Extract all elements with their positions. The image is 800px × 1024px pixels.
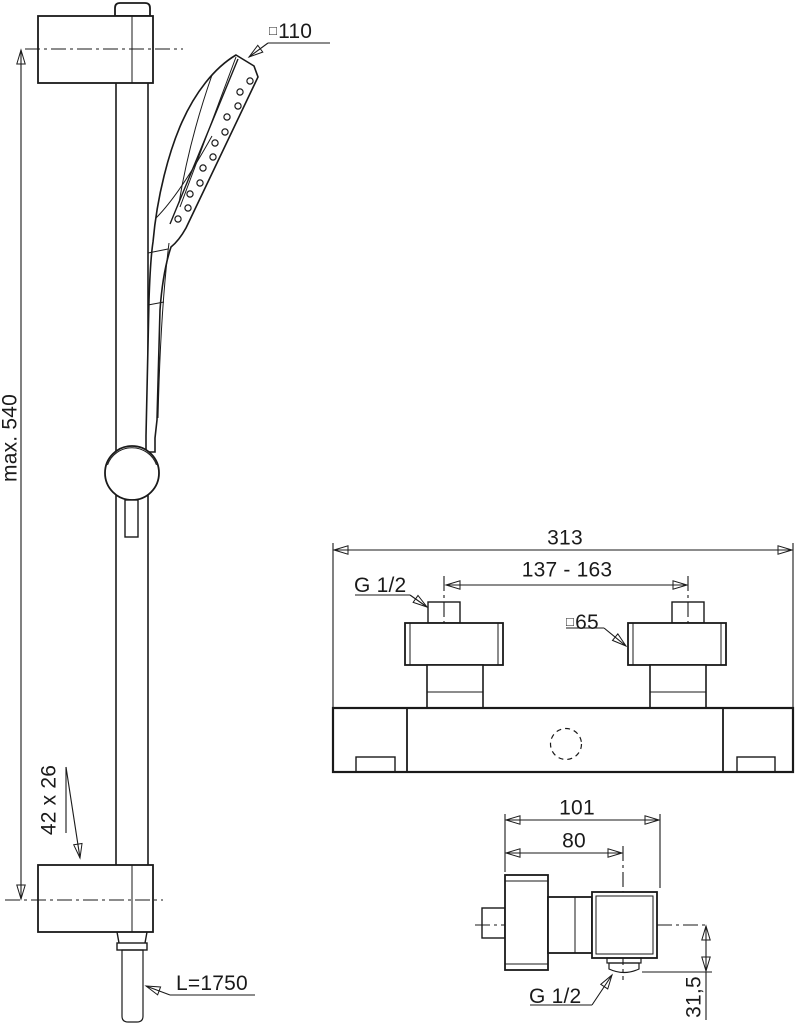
label-outlet-thread: G 1/2 bbox=[529, 986, 581, 1007]
hand-shower bbox=[146, 55, 258, 452]
hose-tube bbox=[122, 950, 143, 1022]
label-outlet-drop: 31,5 bbox=[684, 976, 705, 1018]
leader-bracket-size bbox=[66, 767, 80, 858]
left-inlet-union bbox=[405, 602, 503, 708]
label-overall-depth: 101 bbox=[559, 798, 595, 819]
shower-hose bbox=[117, 932, 147, 1022]
side-inlet-thread bbox=[482, 908, 505, 938]
square-symbol: □ bbox=[269, 23, 277, 38]
label-inlet-thread: G 1/2 bbox=[354, 575, 406, 596]
side-escutcheon-plate bbox=[505, 875, 548, 970]
slider-handle bbox=[125, 500, 138, 537]
rail-top-cap bbox=[115, 3, 150, 16]
shower-rail-assembly bbox=[5, 3, 330, 1022]
side-outlet-thread bbox=[607, 958, 641, 973]
top-wall-bracket bbox=[25, 16, 183, 83]
drawing-linework bbox=[0, 0, 800, 1024]
label-mixer-width: 313 bbox=[547, 528, 583, 549]
mixer-side-view bbox=[475, 814, 712, 1020]
label-bracket-size: 42 x 26 bbox=[39, 765, 60, 835]
mixer-body bbox=[333, 708, 793, 772]
bottom-wall-bracket bbox=[5, 865, 163, 932]
right-inlet-union bbox=[628, 602, 726, 708]
side-body-connector bbox=[548, 897, 592, 953]
label-escutcheon-size: □65 bbox=[566, 612, 599, 633]
label-head-size: □110 bbox=[269, 21, 312, 42]
technical-drawing: □110 max. 540 42 x 26 L=1750 313 137 - 1… bbox=[0, 0, 800, 1024]
side-outlet-block bbox=[592, 892, 657, 958]
hand-shower-outline bbox=[146, 55, 258, 452]
label-outlet-center-depth: 80 bbox=[562, 831, 586, 852]
rail-slider bbox=[105, 446, 159, 537]
leader-head-size bbox=[249, 43, 330, 57]
label-rail-height: max. 540 bbox=[0, 394, 21, 482]
label-hose-length: L=1750 bbox=[176, 973, 248, 994]
slider-knob bbox=[105, 446, 159, 500]
square-symbol: □ bbox=[566, 614, 574, 629]
label-inlet-centers: 137 - 163 bbox=[522, 560, 613, 581]
